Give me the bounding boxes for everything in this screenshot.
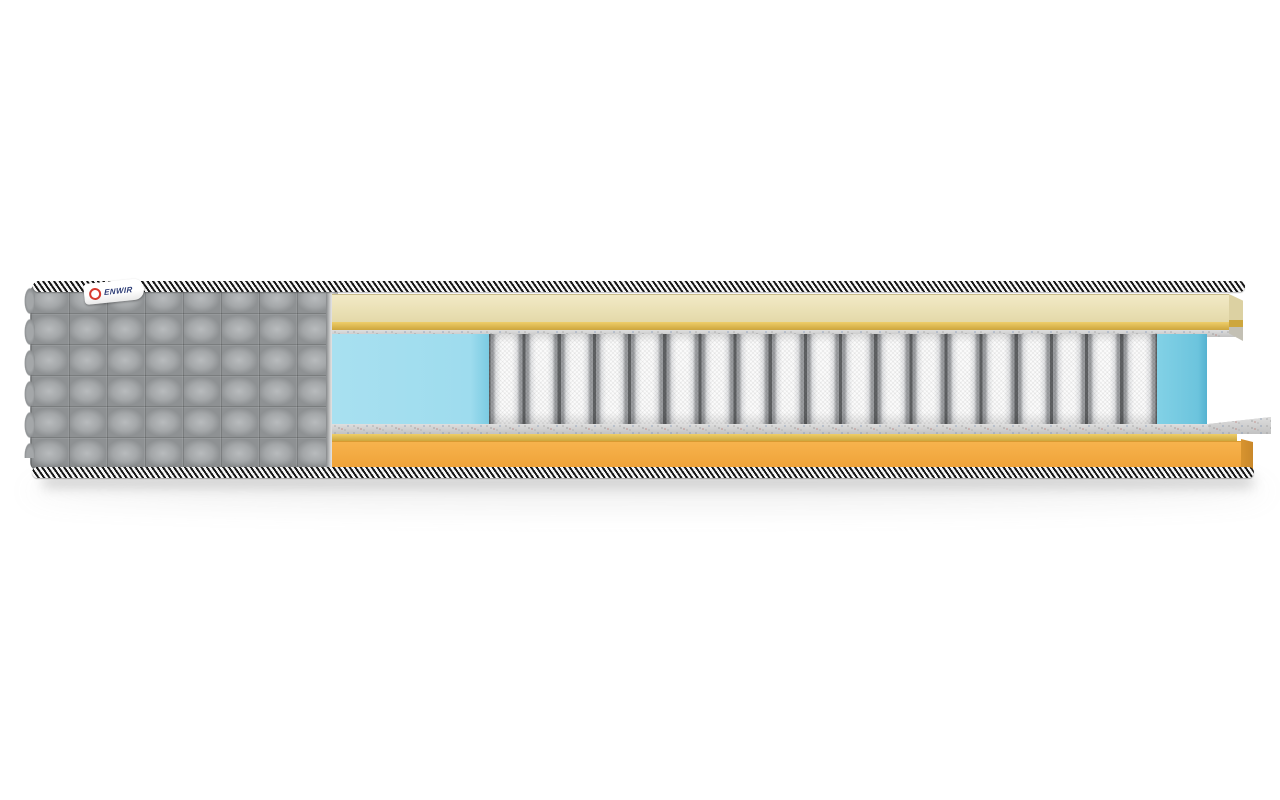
product-image-canvas: ENWIR (0, 0, 1280, 800)
spring-insulator-pad-surface (1207, 417, 1271, 434)
felt-line-bottom (332, 434, 1237, 441)
brand-logo-icon (89, 287, 102, 300)
base-foam-layer (332, 441, 1241, 468)
quilted-cover-scalloped-edge (23, 286, 35, 458)
mattress-piping-top (33, 281, 1245, 292)
brand-tag-label: ENWIR (104, 286, 133, 297)
quilted-cover (30, 284, 333, 471)
foam-block-cut-face (332, 334, 489, 425)
top-layer-right-face (1229, 294, 1243, 341)
felt-line-top (332, 322, 1229, 330)
base-layer-right-face (1241, 439, 1253, 469)
pocket-spring-unit (489, 334, 1157, 425)
spring-insulator-pad-bottom (332, 424, 1209, 434)
mattress-piping-bottom (32, 467, 1254, 478)
top-comfort-foam-layer (332, 294, 1229, 322)
mattress-cross-section: ENWIR (29, 278, 1252, 478)
foam-side-edge (1157, 334, 1207, 425)
